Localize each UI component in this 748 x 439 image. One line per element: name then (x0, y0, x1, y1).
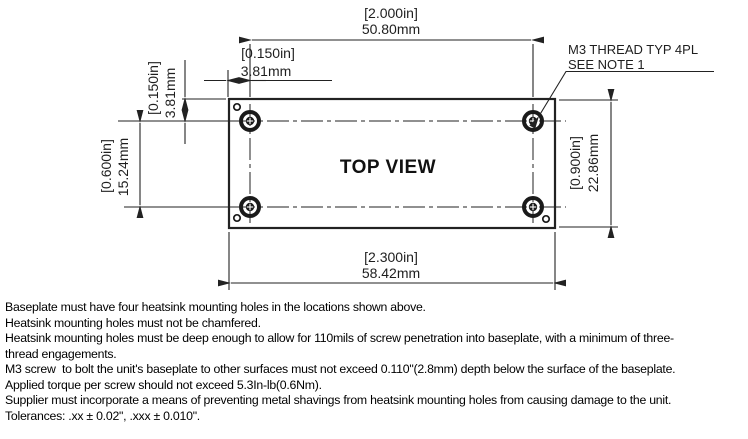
note-line-8: Tolerances: .xx ± 0.02", .xxx ± 0.010". (5, 409, 675, 425)
dim-hole-span-h-mm: 50.80mm (362, 21, 420, 37)
note-line-1: Baseplate must have four heatsink mounti… (5, 300, 675, 316)
notes-block: Baseplate must have four heatsink mounti… (5, 300, 675, 424)
note-line-5: M3 screw to bolt the unit's baseplate to… (5, 362, 675, 378)
dim-plate-height-in: [0.900in] (567, 136, 583, 190)
dim-plate-height-mm: 22.86mm (585, 134, 601, 192)
dim-edge-offset-h-in: [0.150in] (241, 45, 295, 61)
dim-hole-span-v-mm: 15.24mm (115, 138, 131, 196)
note-line-7: Supplier must incorporate a means of pre… (5, 393, 675, 409)
technical-drawing: [2.000in] 50.80mm [0.150in] 3.81mm [0.15… (0, 0, 748, 298)
view-title: TOP VIEW (340, 157, 436, 178)
dim-plate-width-in: [2.300in] (364, 249, 418, 265)
dim-hole-span-h-in: [2.000in] (364, 5, 418, 21)
corner-hole-bottom-left (234, 215, 240, 221)
note-line-2: Heatsink mounting holes must not be cham… (5, 316, 675, 332)
thread-note-leader (539, 72, 714, 117)
drawing-sheet: [2.000in] 50.80mm [0.150in] 3.81mm [0.15… (0, 0, 748, 439)
note-line-3: Heatsink mounting holes must be deep eno… (5, 331, 675, 347)
note-line-6: Applied torque per screw should not exce… (5, 378, 675, 394)
dim-hole-span-v-in: [0.600in] (98, 139, 114, 193)
thread-note-line1: M3 THREAD TYP 4PL (568, 42, 698, 57)
dim-edge-offset-h-mm: 3.81mm (241, 63, 292, 79)
corner-hole-bottom-right (543, 216, 549, 222)
thread-note-line2: SEE NOTE 1 (568, 57, 645, 72)
dim-edge-offset-v-in: [0.150in] (145, 61, 161, 115)
dim-edge-offset-v-mm: 3.81mm (162, 68, 178, 119)
corner-hole-top-left (234, 104, 240, 110)
dim-plate-width-mm: 58.42mm (362, 265, 420, 281)
note-line-4: thread engagements. (5, 347, 675, 363)
